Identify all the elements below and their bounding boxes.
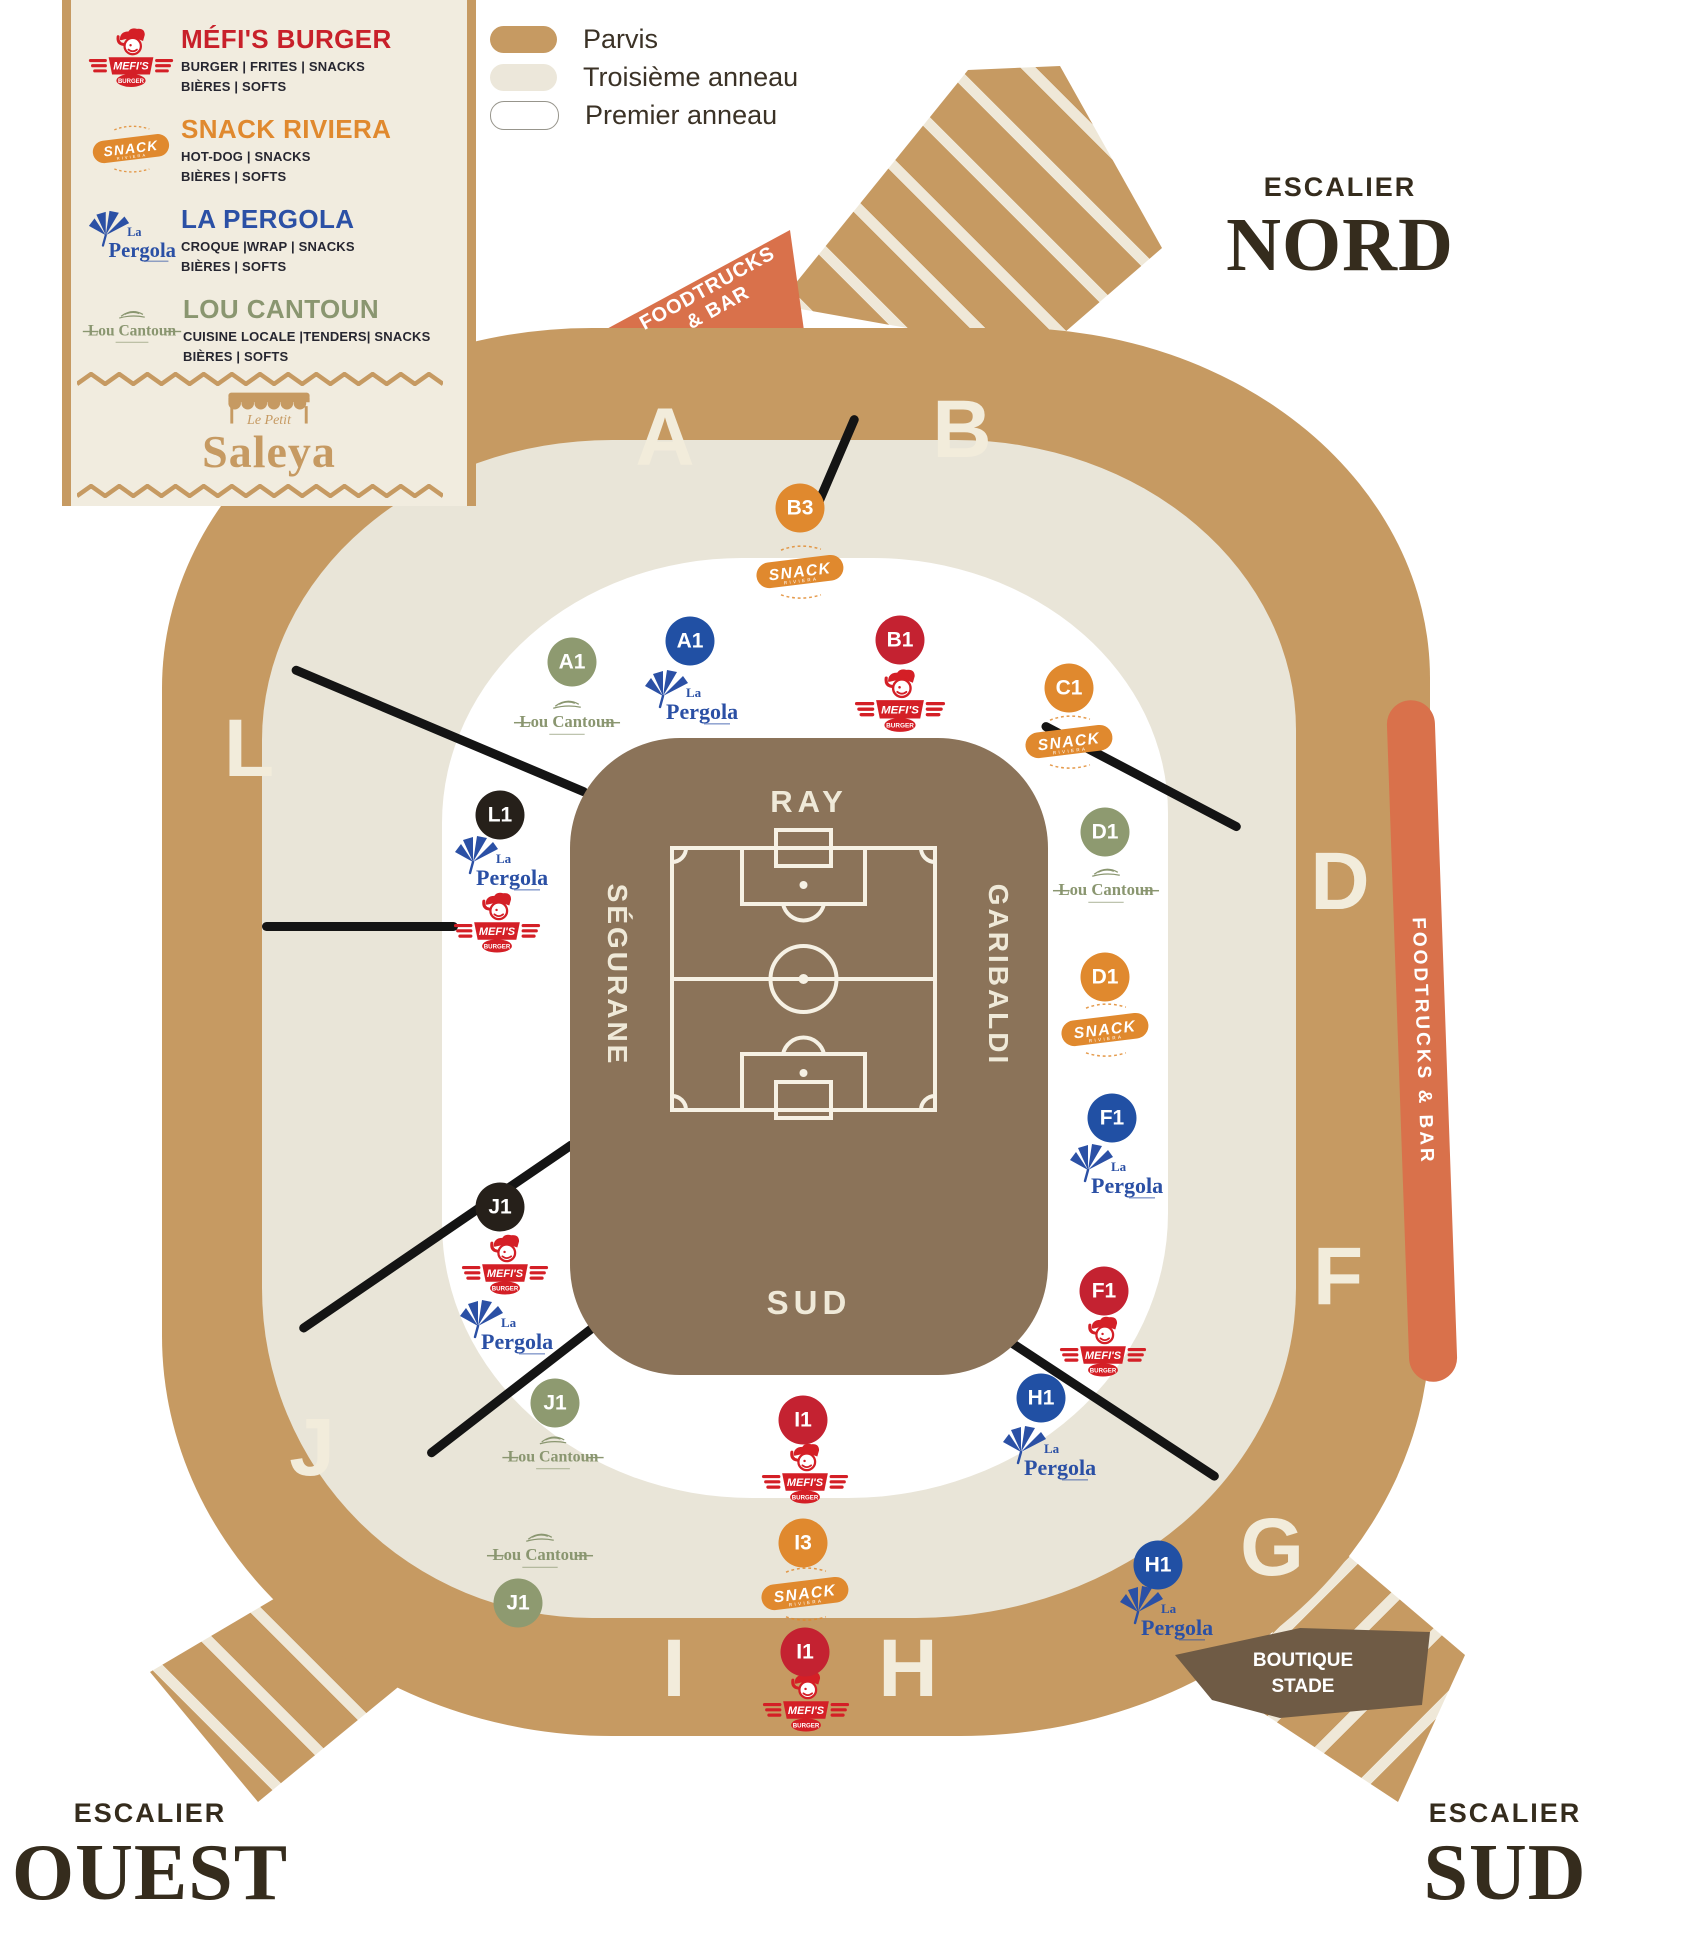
location-badge-i1: I1 [779, 1396, 828, 1445]
vendor-list: MEFI'S BURGER MÉFI'S BURGER BURGER | FRI… [71, 14, 467, 374]
boutique-label-line1: BOUTIQUE [1238, 1648, 1368, 1674]
pitch-block: RAY SUD SÉGURANE GARIBALDI [570, 738, 1048, 1375]
stand-garibaldi-label: GARIBALDI [982, 884, 1014, 1067]
svg-text:BURGER: BURGER [886, 723, 914, 730]
stand-sud-label: SUD [570, 1284, 1048, 1322]
logo-mefis: MEFI'S BURGER [762, 1671, 850, 1736]
badge-label: A1 [559, 650, 586, 674]
mefis-burger-logo: MEFI'S BURGER [854, 668, 946, 736]
vendor-legend-row: MEFI'S BURGER MÉFI'S BURGER BURGER | FRI… [71, 14, 467, 104]
mefis-burger-logo: MEFI'S BURGER [88, 27, 174, 91]
mefis-burger-logo: MEFI'S BURGER [1059, 1316, 1147, 1381]
svg-text:BURGER: BURGER [793, 1722, 820, 1729]
section-letter-d: D [1310, 835, 1369, 929]
vendor-name: SNACK RIVIERA [181, 114, 461, 145]
snack-riviera-logo: SNACK RIVIERA [1058, 1002, 1153, 1059]
vendor-name: LA PERGOLA [181, 204, 461, 235]
logo-snack: SNACK RIVIERA [1058, 1002, 1153, 1059]
badge-label: H1 [1028, 1386, 1055, 1410]
svg-text:BURGER: BURGER [484, 943, 511, 950]
vendor-logo-slot: La Pergola [81, 210, 181, 268]
location-badge-d1: D1 [1081, 953, 1130, 1002]
vendor-logo-slot: SNACK RIVIERA [81, 124, 181, 174]
vendor-logo-slot: Lou Cantoun [81, 306, 183, 352]
svg-text:BURGER: BURGER [118, 79, 145, 85]
logo-pergola: La Pergola [450, 835, 550, 897]
svg-text:BURGER: BURGER [1090, 1367, 1117, 1374]
mefis-burger-logo: MEFI'S BURGER [761, 1443, 849, 1508]
badge-label: B3 [787, 496, 814, 520]
badge-label: C1 [1056, 676, 1083, 700]
badge-label: L1 [488, 803, 513, 827]
section-letter-a: A [635, 391, 694, 485]
escalier-sud-label: ESCALIER SUD [1355, 1798, 1655, 1915]
location-badge-b1: B1 [876, 616, 925, 665]
location-badge-j1: J1 [476, 1183, 525, 1232]
section-letter-h: H [878, 1622, 937, 1716]
svg-text:Pergola: Pergola [1141, 1615, 1213, 1640]
ring-color-swatch [490, 101, 559, 130]
logo-mefis: MEFI'S BURGER [854, 668, 946, 736]
badge-label: I1 [794, 1408, 812, 1432]
snack-riviera-logo: SNACK RIVIERA [89, 124, 173, 174]
logo-mefis: MEFI'S BURGER [1059, 1316, 1147, 1381]
logo-pergola: La Pergola [1065, 1143, 1165, 1205]
vendor-products-line2: BIÈRES | SOFTS [183, 348, 461, 365]
section-letter-j: J [289, 1401, 335, 1495]
la-pergola-logo: La Pergola [1115, 1585, 1215, 1647]
snack-riviera-logo: SNACK RIVIERA [1022, 714, 1117, 771]
badge-label: D1 [1092, 965, 1119, 989]
vendor-products-line2: BIÈRES | SOFTS [181, 258, 461, 275]
location-badge-h1: H1 [1134, 1541, 1183, 1590]
badge-label: J1 [488, 1195, 511, 1219]
badge-label: A1 [677, 629, 704, 653]
badge-label: H1 [1145, 1553, 1172, 1577]
badge-label: J1 [506, 1591, 529, 1615]
la-pergola-logo: La Pergola [1065, 1143, 1165, 1205]
svg-text:MEFI'S: MEFI'S [1085, 1350, 1122, 1362]
location-badge-b3: B3 [776, 484, 825, 533]
location-badge-f1: F1 [1080, 1267, 1129, 1316]
ring-color-swatch [490, 26, 557, 53]
lou-cantoun-logo: Lou Cantoun [501, 1432, 606, 1479]
badge-label: D1 [1092, 820, 1119, 844]
escalier-sud-small: ESCALIER [1355, 1798, 1655, 1829]
logo-loucantoun: Lou Cantoun [512, 695, 622, 745]
svg-text:Lou Cantoun: Lou Cantoun [519, 712, 615, 731]
mefis-burger-logo: MEFI'S BURGER [461, 1234, 549, 1299]
ring-legend-row: Troisième anneau [490, 58, 798, 96]
svg-text:La: La [1161, 1601, 1177, 1616]
svg-text:Lou Cantoun: Lou Cantoun [508, 1449, 599, 1466]
section-letter-f: F [1313, 1230, 1363, 1324]
badge-label: J1 [543, 1391, 566, 1415]
logo-pergola: La Pergola [1115, 1585, 1215, 1647]
escalier-nord-small: ESCALIER [1155, 172, 1525, 203]
svg-text:La: La [501, 1315, 517, 1330]
logo-snack: SNACK RIVIERA [753, 544, 848, 601]
svg-text:Pergola: Pergola [109, 240, 176, 262]
location-badge-a1: A1 [666, 617, 715, 666]
badge-label: I1 [796, 1640, 814, 1664]
logo-pergola: La Pergola [455, 1299, 555, 1361]
escalier-nord-big: NORD [1155, 207, 1525, 285]
lou-cantoun-logo: Lou Cantoun [485, 1528, 595, 1578]
vendor-legend-row: Lou Cantoun LOU CANTOUN CUISINE LOCALE |… [71, 284, 467, 374]
svg-text:MEFI'S: MEFI'S [113, 61, 149, 73]
snack-riviera-logo: SNACK RIVIERA [753, 544, 848, 601]
vendor-products-line1: CROQUE |WRAP | SNACKS [181, 238, 461, 255]
location-badge-d1: D1 [1081, 808, 1130, 857]
vendor-products-line2: BIÈRES | SOFTS [181, 168, 461, 185]
location-badge-i1: I1 [781, 1628, 830, 1677]
lou-cantoun-logo: Lou Cantoun [81, 306, 183, 352]
escalier-sud-big: SUD [1355, 1833, 1655, 1915]
section-divider-line [262, 922, 458, 931]
football-pitch-icon [570, 738, 1048, 1375]
logo-pergola: La Pergola [640, 669, 740, 731]
logo-loucantoun: Lou Cantoun [501, 1432, 606, 1479]
badge-label: B1 [887, 628, 914, 652]
badge-label: F1 [1100, 1106, 1125, 1130]
foodtrucks-bar-east-label: FOODTRUCKS & BAR [1407, 917, 1438, 1165]
location-badge-j1: J1 [494, 1579, 543, 1628]
svg-text:Pergola: Pergola [476, 865, 548, 890]
location-badge-l1: L1 [476, 791, 525, 840]
vendor-products-line1: CUISINE LOCALE |TENDERS| SNACKS [183, 328, 461, 345]
section-letter-b: B [932, 383, 991, 477]
location-badge-j1: J1 [531, 1379, 580, 1428]
mefis-burger-logo: MEFI'S BURGER [453, 892, 541, 957]
la-pergola-logo: La Pergola [84, 210, 178, 268]
saleya-name: Saleya [71, 429, 467, 475]
svg-text:La: La [1044, 1441, 1060, 1456]
vendor-name: LOU CANTOUN [183, 294, 461, 325]
ring-legend-label: Parvis [583, 24, 658, 55]
escalier-nord-label: ESCALIER NORD [1155, 172, 1525, 285]
boutique-stade-label: BOUTIQUE STADE [1238, 1648, 1368, 1699]
snack-riviera-logo: SNACK RIVIERA [758, 1566, 853, 1623]
logo-mefis: MEFI'S BURGER [453, 892, 541, 957]
location-badge-a1: A1 [548, 638, 597, 687]
la-pergola-logo: La Pergola [640, 669, 740, 731]
logo-mefis: MEFI'S BURGER [461, 1234, 549, 1299]
la-pergola-logo: La Pergola [450, 835, 550, 897]
zigzag-divider [77, 372, 443, 386]
ring-legend-label: Premier anneau [585, 100, 777, 131]
logo-loucantoun: Lou Cantoun [485, 1528, 595, 1578]
vendor-products-line1: BURGER | FRITES | SNACKS [181, 58, 461, 75]
svg-text:La: La [686, 685, 702, 700]
svg-text:MEFI'S: MEFI'S [787, 1477, 824, 1489]
stand-ray-label: RAY [570, 784, 1048, 820]
logo-mefis: MEFI'S BURGER [761, 1443, 849, 1508]
svg-text:MEFI'S: MEFI'S [881, 704, 919, 716]
stairs-north [778, 62, 1168, 354]
zigzag-bottom [77, 484, 443, 498]
mefis-burger-logo: MEFI'S BURGER [762, 1671, 850, 1736]
svg-text:Pergola: Pergola [1091, 1173, 1163, 1198]
logo-snack: SNACK RIVIERA [1022, 714, 1117, 771]
la-pergola-logo: La Pergola [455, 1299, 555, 1361]
section-letter-l: L [224, 702, 274, 796]
stadium-map: FOODTRUCKS & BAR FOODTRUCKS & BAR [0, 0, 1688, 1947]
lou-cantoun-logo: Lou Cantoun [512, 695, 622, 745]
rings-legend: Parvis Troisième anneau Premier anneau [490, 20, 798, 134]
svg-text:Pergola: Pergola [1024, 1455, 1096, 1480]
escalier-ouest-big: OUEST [0, 1833, 300, 1915]
svg-text:Lou Cantoun: Lou Cantoun [492, 1545, 588, 1564]
location-badge-c1: C1 [1045, 664, 1094, 713]
section-letter-i: I [663, 1622, 686, 1716]
svg-text:Pergola: Pergola [666, 699, 738, 724]
logo-loucantoun: Lou Cantoun [1051, 863, 1161, 913]
vendor-legend-row: SNACK RIVIERA SNACK RIVIERA HOT-DOG | SN… [71, 104, 467, 194]
section-letter-g: G [1240, 1501, 1304, 1595]
svg-text:MEFI'S: MEFI'S [479, 926, 516, 938]
svg-text:Lou Cantoun: Lou Cantoun [88, 322, 177, 339]
svg-text:Pergola: Pergola [481, 1329, 553, 1354]
vendor-legend-panel: MEFI'S BURGER MÉFI'S BURGER BURGER | FRI… [62, 0, 476, 506]
saleya-logo: Le Petit Saleya [71, 390, 467, 475]
badge-label: F1 [1092, 1279, 1117, 1303]
svg-text:La: La [127, 225, 141, 239]
svg-text:BURGER: BURGER [492, 1285, 519, 1292]
badge-label: I3 [794, 1531, 812, 1555]
logo-snack: SNACK RIVIERA [758, 1566, 853, 1623]
location-badge-i3: I3 [779, 1519, 828, 1568]
ring-color-swatch [490, 64, 557, 91]
vendor-logo-slot: MEFI'S BURGER [81, 27, 181, 91]
svg-text:BURGER: BURGER [792, 1494, 819, 1501]
escalier-ouest-small: ESCALIER [0, 1798, 300, 1829]
svg-text:La: La [496, 851, 512, 866]
vendor-name: MÉFI'S BURGER [181, 24, 461, 55]
vendor-legend-row: La Pergola LA PERGOLA CROQUE |WRAP | SNA… [71, 194, 467, 284]
svg-text:La: La [1111, 1159, 1127, 1174]
location-badge-f1: F1 [1088, 1094, 1137, 1143]
la-pergola-logo: La Pergola [998, 1425, 1098, 1487]
svg-text:MEFI'S: MEFI'S [788, 1705, 825, 1717]
location-badge-h1: H1 [1017, 1374, 1066, 1423]
boutique-label-line2: STADE [1238, 1674, 1368, 1700]
ring-legend-label: Troisième anneau [583, 62, 798, 93]
lou-cantoun-logo: Lou Cantoun [1051, 863, 1161, 913]
svg-text:MEFI'S: MEFI'S [487, 1268, 524, 1280]
svg-text:Lou Cantoun: Lou Cantoun [1058, 880, 1154, 899]
ring-legend-row: Premier anneau [490, 96, 798, 134]
vendor-products-line1: HOT-DOG | SNACKS [181, 148, 461, 165]
stand-segurane-label: SÉGURANE [601, 884, 633, 1067]
logo-pergola: La Pergola [998, 1425, 1098, 1487]
vendor-products-line2: BIÈRES | SOFTS [181, 78, 461, 95]
escalier-ouest-label: ESCALIER OUEST [0, 1798, 300, 1915]
ring-legend-row: Parvis [490, 20, 798, 58]
